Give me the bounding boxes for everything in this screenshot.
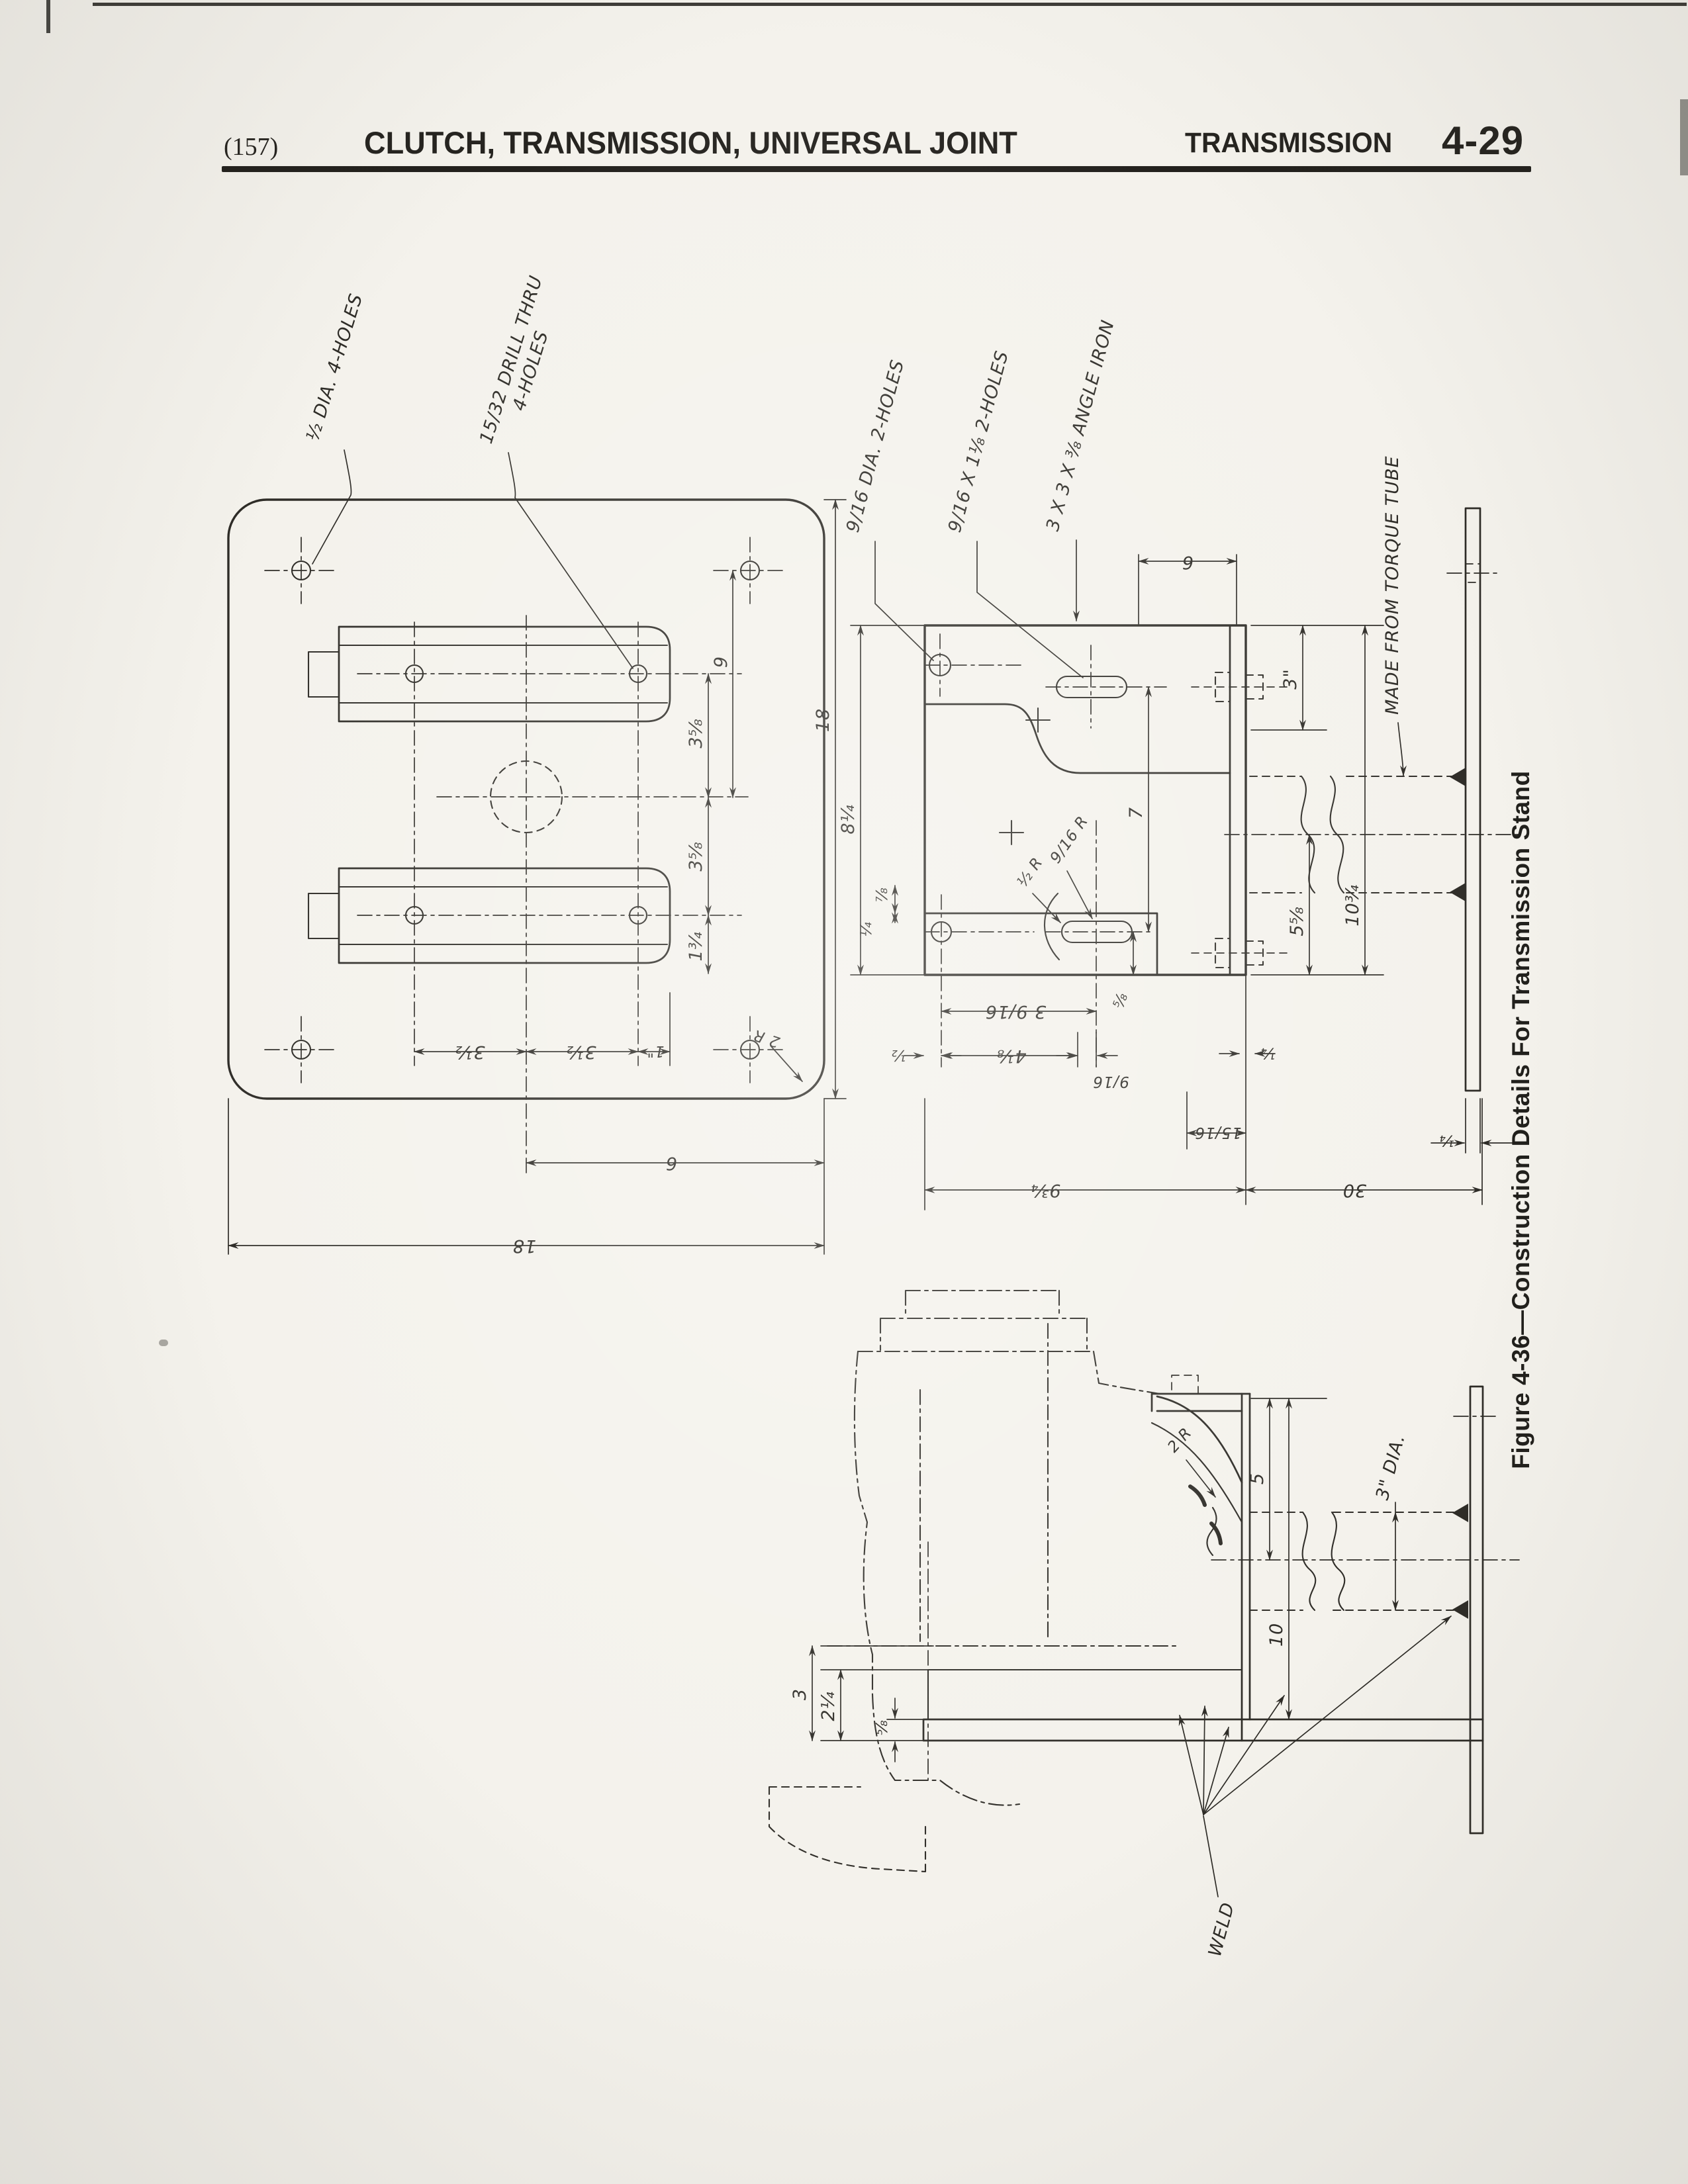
- dim-5-8: ⅝: [874, 1719, 891, 1735]
- dim-1-2: ½: [891, 1046, 906, 1064]
- dim-7-8: ⅞: [874, 887, 891, 902]
- transmission-outline: [769, 1291, 1178, 1872]
- callout-916-dia: 9/16 DIA. 2-HOLES: [843, 357, 933, 660]
- dim-4-1-8: 4⅛: [996, 1046, 1026, 1066]
- page-number: 4-29: [1442, 118, 1524, 163]
- dim-1-inch: 1": [646, 1042, 664, 1060]
- dim-1-4: ¼: [858, 921, 875, 936]
- dim-10-3-4: 10¾: [1342, 884, 1363, 927]
- dim-5: 5: [1247, 1473, 1268, 1484]
- callout-slot-radii: ½ R 9/16 R: [1014, 813, 1092, 923]
- callout-label: MADE FROM TORQUE TUBE: [1382, 455, 1403, 715]
- dim-1-3-4: 1¾: [686, 931, 706, 961]
- chapter-title: CLUTCH, TRANSMISSION, UNIVERSAL JOINT: [364, 124, 1017, 161]
- dim-9: 9: [711, 656, 731, 668]
- dim-1-4: ¼: [1439, 1132, 1454, 1149]
- radius-label: 2 R: [1164, 1424, 1196, 1456]
- radius-label: 9/16 R: [1047, 813, 1092, 866]
- callout-label: 9/16 X 1⅛ 2-HOLES: [945, 348, 1013, 534]
- dim-3-9-16: 3 9/16: [985, 1001, 1046, 1022]
- dim-3-inch: 3": [1280, 668, 1301, 690]
- dim-15-16: 15/16: [1194, 1124, 1241, 1141]
- callout-label: 3 X 3 X ⅜ ANGLE IRON: [1043, 318, 1119, 533]
- dim-3-1-2: 3½: [566, 1042, 596, 1062]
- callout-angle-iron: 3 X 3 X ⅜ ANGLE IRON: [1043, 318, 1119, 621]
- stand-side-view: 5 10 3 2¼ ⅝ 3" DIA. 2 R: [769, 1291, 1519, 1959]
- upright-bar-plan: [1447, 508, 1499, 1091]
- dim-3: 3: [790, 1688, 810, 1700]
- plate-dims-vertical: 9 3⅝ 3⅝ 1¾ 18: [686, 500, 846, 1099]
- dim-18: 18: [813, 708, 833, 732]
- dim-3-5-8: 3⅝: [686, 841, 706, 871]
- dim-6: 6: [665, 1153, 677, 1173]
- scan-edge-left: [46, 0, 50, 33]
- centerlines: [357, 615, 748, 1173]
- radius-label: 2 R: [751, 1026, 782, 1050]
- scanned-page: (157) CLUTCH, TRANSMISSION, UNIVERSAL JO…: [0, 0, 1688, 2184]
- dim-1-4: ¼: [1260, 1044, 1276, 1062]
- callout-tube-dia: 3" DIA.: [1372, 1432, 1409, 1512]
- scan-edge-top: [93, 3, 1687, 6]
- dim-8-1-4: 8¼: [838, 804, 859, 834]
- engineering-drawing: ½ DIA. 4-HOLES 15/32 DRILL THRU 4-HOLES …: [0, 0, 1688, 2184]
- radius-label: ½ R: [1014, 854, 1047, 891]
- dim-18: 18: [512, 1236, 536, 1256]
- callout-label: 3" DIA.: [1372, 1432, 1409, 1502]
- dim-9-3-4: 9¾: [1031, 1180, 1060, 1201]
- callout-label: WELD: [1205, 1900, 1239, 1959]
- dim-3-1-2: 3½: [455, 1042, 485, 1062]
- plate-view: ½ DIA. 4-HOLES 15/32 DRILL THRU 4-HOLES …: [228, 273, 846, 1256]
- dim-30: 30: [1342, 1180, 1366, 1201]
- dim-3-5-8: 3⅝: [686, 718, 706, 748]
- torque-tube-stub: [1225, 768, 1519, 901]
- page-reference: (157): [224, 132, 278, 161]
- figure-caption: Figure 4-36—Construction Details For Tra…: [1507, 770, 1534, 1469]
- dim-6: 6: [1182, 552, 1194, 572]
- callout-label: 9/16 DIA. 2-HOLES: [843, 357, 909, 535]
- callout-label: ½ DIA. 4-HOLES: [303, 291, 367, 443]
- dim-7: 7: [1126, 807, 1147, 819]
- stand-plan-view: 9/16 DIA. 2-HOLES 9/16 X 1⅛ 2-HOLES 3 X …: [838, 318, 1519, 1210]
- dim-10: 10: [1266, 1623, 1287, 1647]
- bolt-top: [1192, 672, 1292, 702]
- dim-2-1-4: 2¼: [818, 1691, 839, 1721]
- scan-speck: [159, 1340, 168, 1346]
- dim-5-3-8: 5⅝: [1287, 906, 1307, 936]
- callout-weld: WELD: [1180, 1616, 1451, 1959]
- callout-drill-thru: 15/32 DRILL THRU 4-HOLES: [476, 273, 633, 668]
- plan-dims: 6 3" 10¾ 5⅝ 7 ⅝ 8¼ ⅞ ¼ 3: [838, 552, 1516, 1210]
- callout-half-dia: ½ DIA. 4-HOLES: [303, 291, 367, 564]
- header-rule: [222, 166, 1531, 172]
- torque-tube-side: [1211, 1504, 1519, 1619]
- dim-9-16: 9/16: [1092, 1073, 1129, 1090]
- scan-smudge-right: [1680, 99, 1688, 175]
- dim-5-8: ⅝: [1110, 990, 1131, 1011]
- side-dims: 5 10 3 2¼ ⅝: [790, 1398, 1395, 1762]
- bolt-bottom: [1192, 938, 1292, 968]
- section-title: TRANSMISSION: [1185, 127, 1392, 159]
- callout-torque-tube: MADE FROM TORQUE TUBE: [1382, 455, 1403, 776]
